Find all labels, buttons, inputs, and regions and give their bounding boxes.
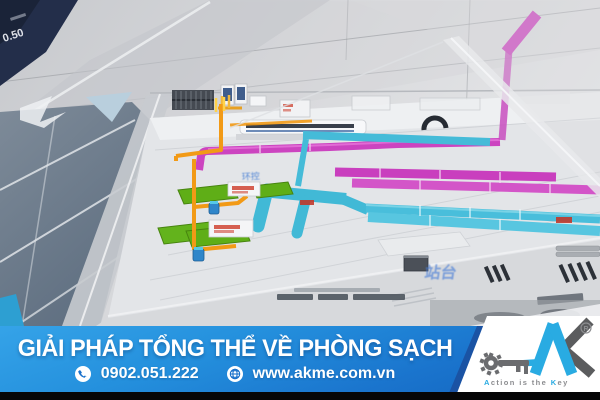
model-photo: 0.50 bbox=[0, 0, 600, 326]
banner-content: GIẢI PHÁP TỔNG THỂ VỀ PHÒNG SẠCH 0902.05… bbox=[0, 326, 470, 392]
phone-icon bbox=[75, 366, 91, 382]
svg-text:R: R bbox=[583, 326, 588, 333]
banner-headline: GIẢI PHÁP TỔNG THỂ VỀ PHÒNG SẠCH bbox=[18, 336, 453, 361]
promo-image: 0.50 bbox=[0, 0, 600, 400]
bottom-black-strip bbox=[0, 392, 600, 400]
contact-row: 0902.051.222 www.akme.com.vn bbox=[75, 365, 395, 383]
website-url: www.akme.com.vn bbox=[253, 365, 396, 383]
logo-tagline: Action is the Key bbox=[484, 378, 600, 387]
env-control-label: 环控 bbox=[242, 170, 261, 182]
phone-number: 0902.051.222 bbox=[101, 365, 199, 383]
globe-icon bbox=[227, 366, 243, 382]
platform-label: 站台 bbox=[423, 263, 458, 282]
logo-letter-a bbox=[523, 324, 572, 374]
gear-key-icon bbox=[479, 352, 529, 375]
